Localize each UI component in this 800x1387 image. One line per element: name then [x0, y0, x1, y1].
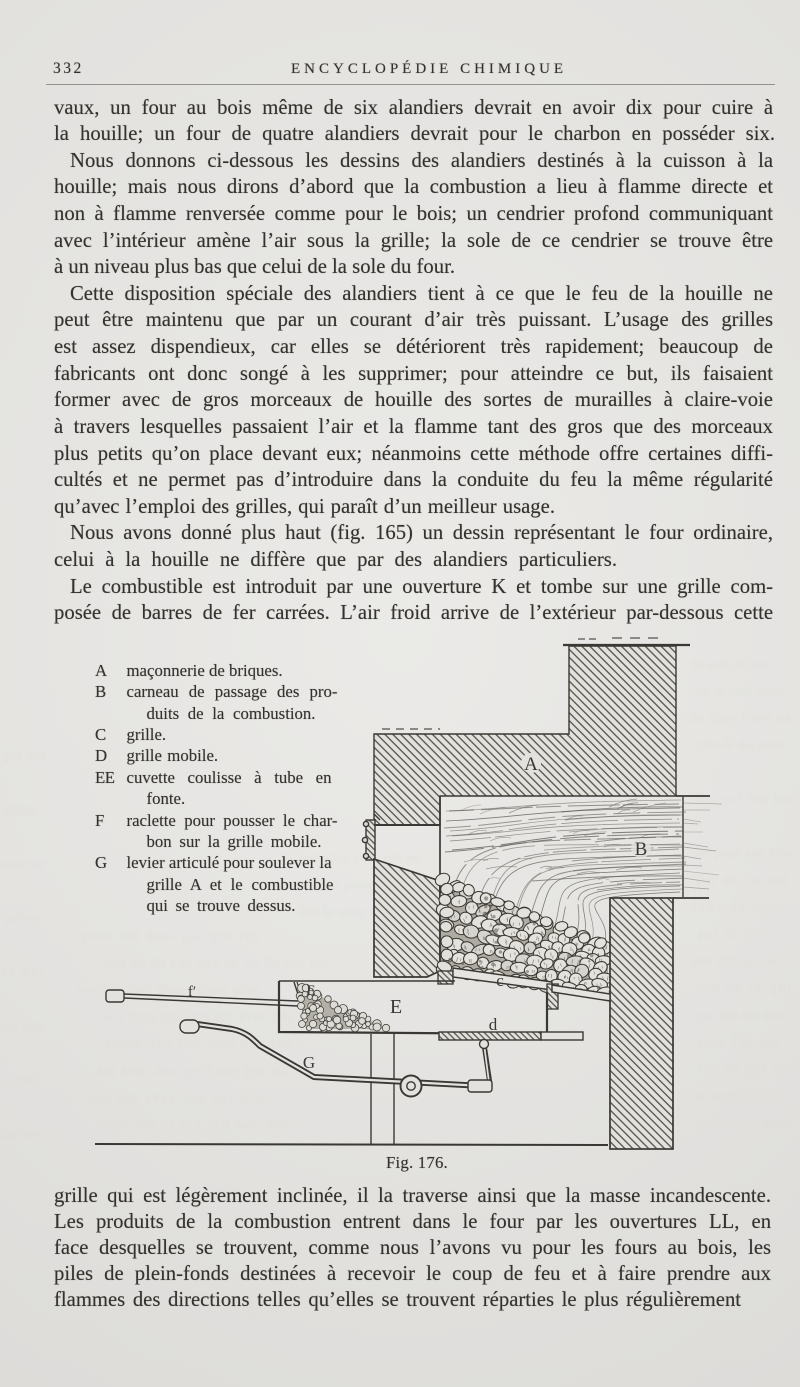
svg-text:feu dans une des sur avec par: feu dans une des sur avec par feu	[103, 1009, 317, 1024]
svg-text:son que avec est ne: son que avec est ne	[300, 850, 420, 865]
svg-text:dans du tout: dans du tout	[690, 899, 781, 914]
svg-text:ne avec de avec: ne avec de avec	[694, 1088, 786, 1103]
svg-text:par des du ce: par des du ce	[693, 953, 774, 968]
svg-text:ce la tout avec: ce la tout avec	[697, 683, 783, 698]
svg-text:feu feu des fours dans plus: feu feu des fours dans plus	[76, 982, 261, 997]
svg-text:que sur avec une sur plus: que sur avec une sur plus	[87, 1090, 269, 1105]
svg-text:que qui: que qui	[2, 748, 45, 763]
svg-text:par avec: par avec	[2, 1126, 45, 1141]
svg-text:plus feu est: plus feu est	[697, 1034, 779, 1049]
svg-text:f′: f′	[188, 984, 196, 1000]
svg-text:par la feu par: par la feu par	[698, 926, 793, 941]
svg-text:B: B	[635, 839, 648, 860]
svg-text:plus de des fours: plus de des fours	[697, 737, 784, 752]
svg-text:des avec plus: des avec plus	[696, 1115, 791, 1130]
svg-text:c: c	[496, 971, 504, 990]
svg-text:feu de qui que: feu de qui que	[697, 1061, 796, 1076]
svg-text:les pour son avec: les pour son avec	[695, 845, 795, 860]
svg-text:des avec des qui fours feu qui: des avec des qui fours feu qui	[95, 1063, 289, 1078]
svg-text:des fours: des fours	[2, 802, 37, 817]
svg-text:ce avec ne avec: ce avec ne avec	[691, 656, 776, 671]
svg-text:tout sur ce les feu son dans: tout sur ce les feu son dans	[100, 1117, 296, 1132]
svg-text:A: A	[524, 754, 538, 775]
svg-text:est avec: est avec	[2, 1018, 47, 1033]
svg-text:G: G	[303, 1053, 315, 1072]
svg-text:feu de du son son ce du du sur: feu de du son son ce du du sur sur	[105, 955, 330, 970]
svg-text:tout sur: tout sur	[2, 856, 45, 871]
svg-text:d: d	[489, 1015, 498, 1034]
svg-text:de dans fours ne: de dans fours ne	[690, 710, 791, 725]
svg-text:pour sur dans par que feu: pour sur dans par que feu	[83, 928, 260, 943]
svg-text:ce des: ce des	[2, 964, 44, 979]
svg-text:est avec: est avec	[2, 1072, 38, 1087]
svg-text:feu ne ce qui: feu ne ce qui	[697, 980, 791, 995]
svg-text:E: E	[306, 983, 315, 999]
svg-text:que fours: que fours	[2, 910, 41, 925]
svg-text:E: E	[390, 996, 402, 1018]
svg-text:que des qui une: que des qui une	[696, 1007, 783, 1022]
